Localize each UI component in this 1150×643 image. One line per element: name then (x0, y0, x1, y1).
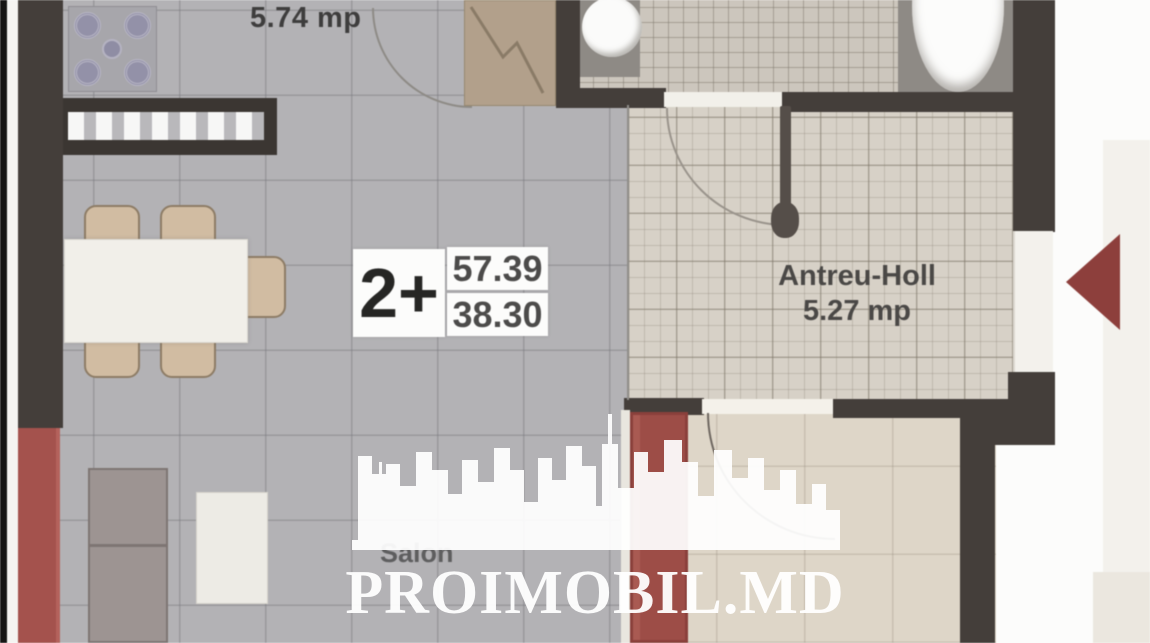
city-skyline-logo (352, 412, 840, 558)
floor-plan-canvas: 5.74 mp Antreu-Holl 5.27 mp Salon 2+ 57.… (0, 0, 1150, 643)
watermark-brand: PROIMOBIL.MD (330, 558, 860, 629)
watermark: PROIMOBIL.MD (0, 0, 1150, 643)
